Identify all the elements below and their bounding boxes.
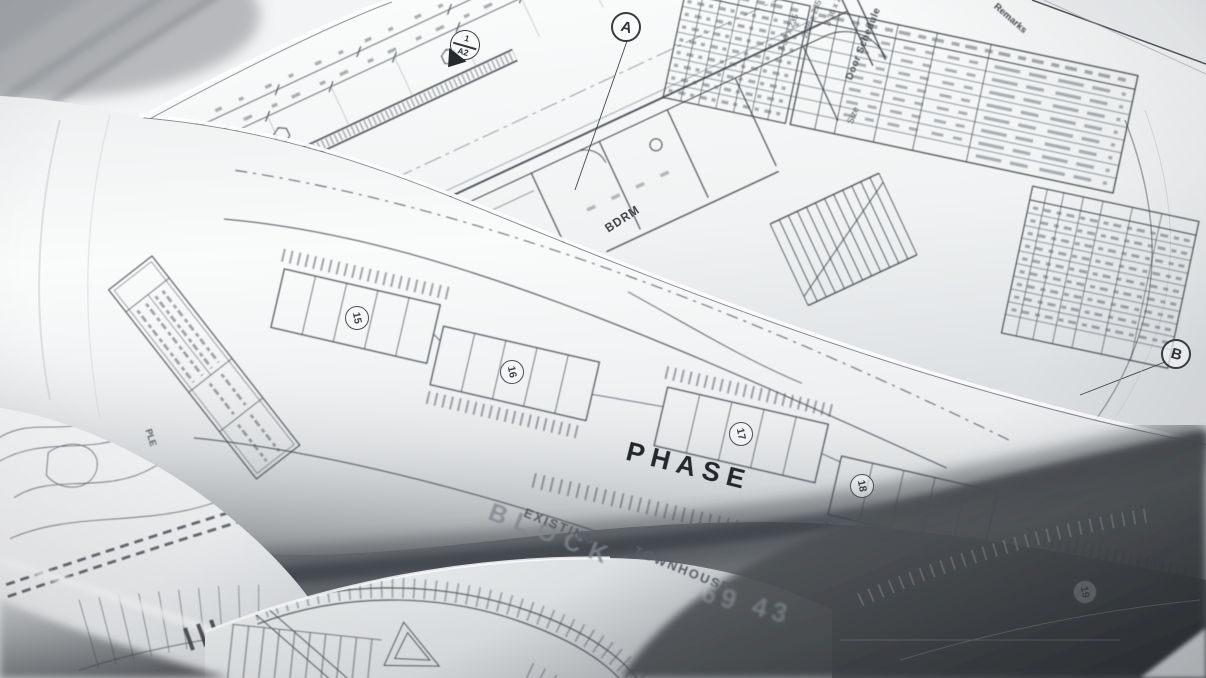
building-tag-18: 18: [850, 474, 874, 498]
building-tag-15: 15: [345, 306, 369, 330]
building-tag-19: 19: [1073, 580, 1097, 604]
building-tag-number: 19: [1078, 585, 1092, 599]
grid-bubble-b: B: [1161, 339, 1191, 369]
building-tag-number: 15: [350, 311, 364, 325]
building-tag-17: 17: [729, 422, 753, 446]
section-marker-icon: 1 A2: [446, 30, 486, 74]
building-tag-16: 16: [500, 360, 524, 384]
blueprint-photo: Door Schedule Size Remarks 2-36 x 235 3-…: [0, 0, 1206, 678]
grid-bubble-a-letter: A: [618, 17, 633, 36]
building-tag-number: 16: [505, 365, 519, 379]
building-tag-number: 18: [855, 479, 869, 493]
building-tag-number: 17: [734, 427, 748, 441]
grid-bubble-a: A: [611, 12, 641, 42]
blueprint-photo-art: [0, 0, 1206, 678]
grid-bubble-b-letter: B: [1168, 344, 1183, 363]
